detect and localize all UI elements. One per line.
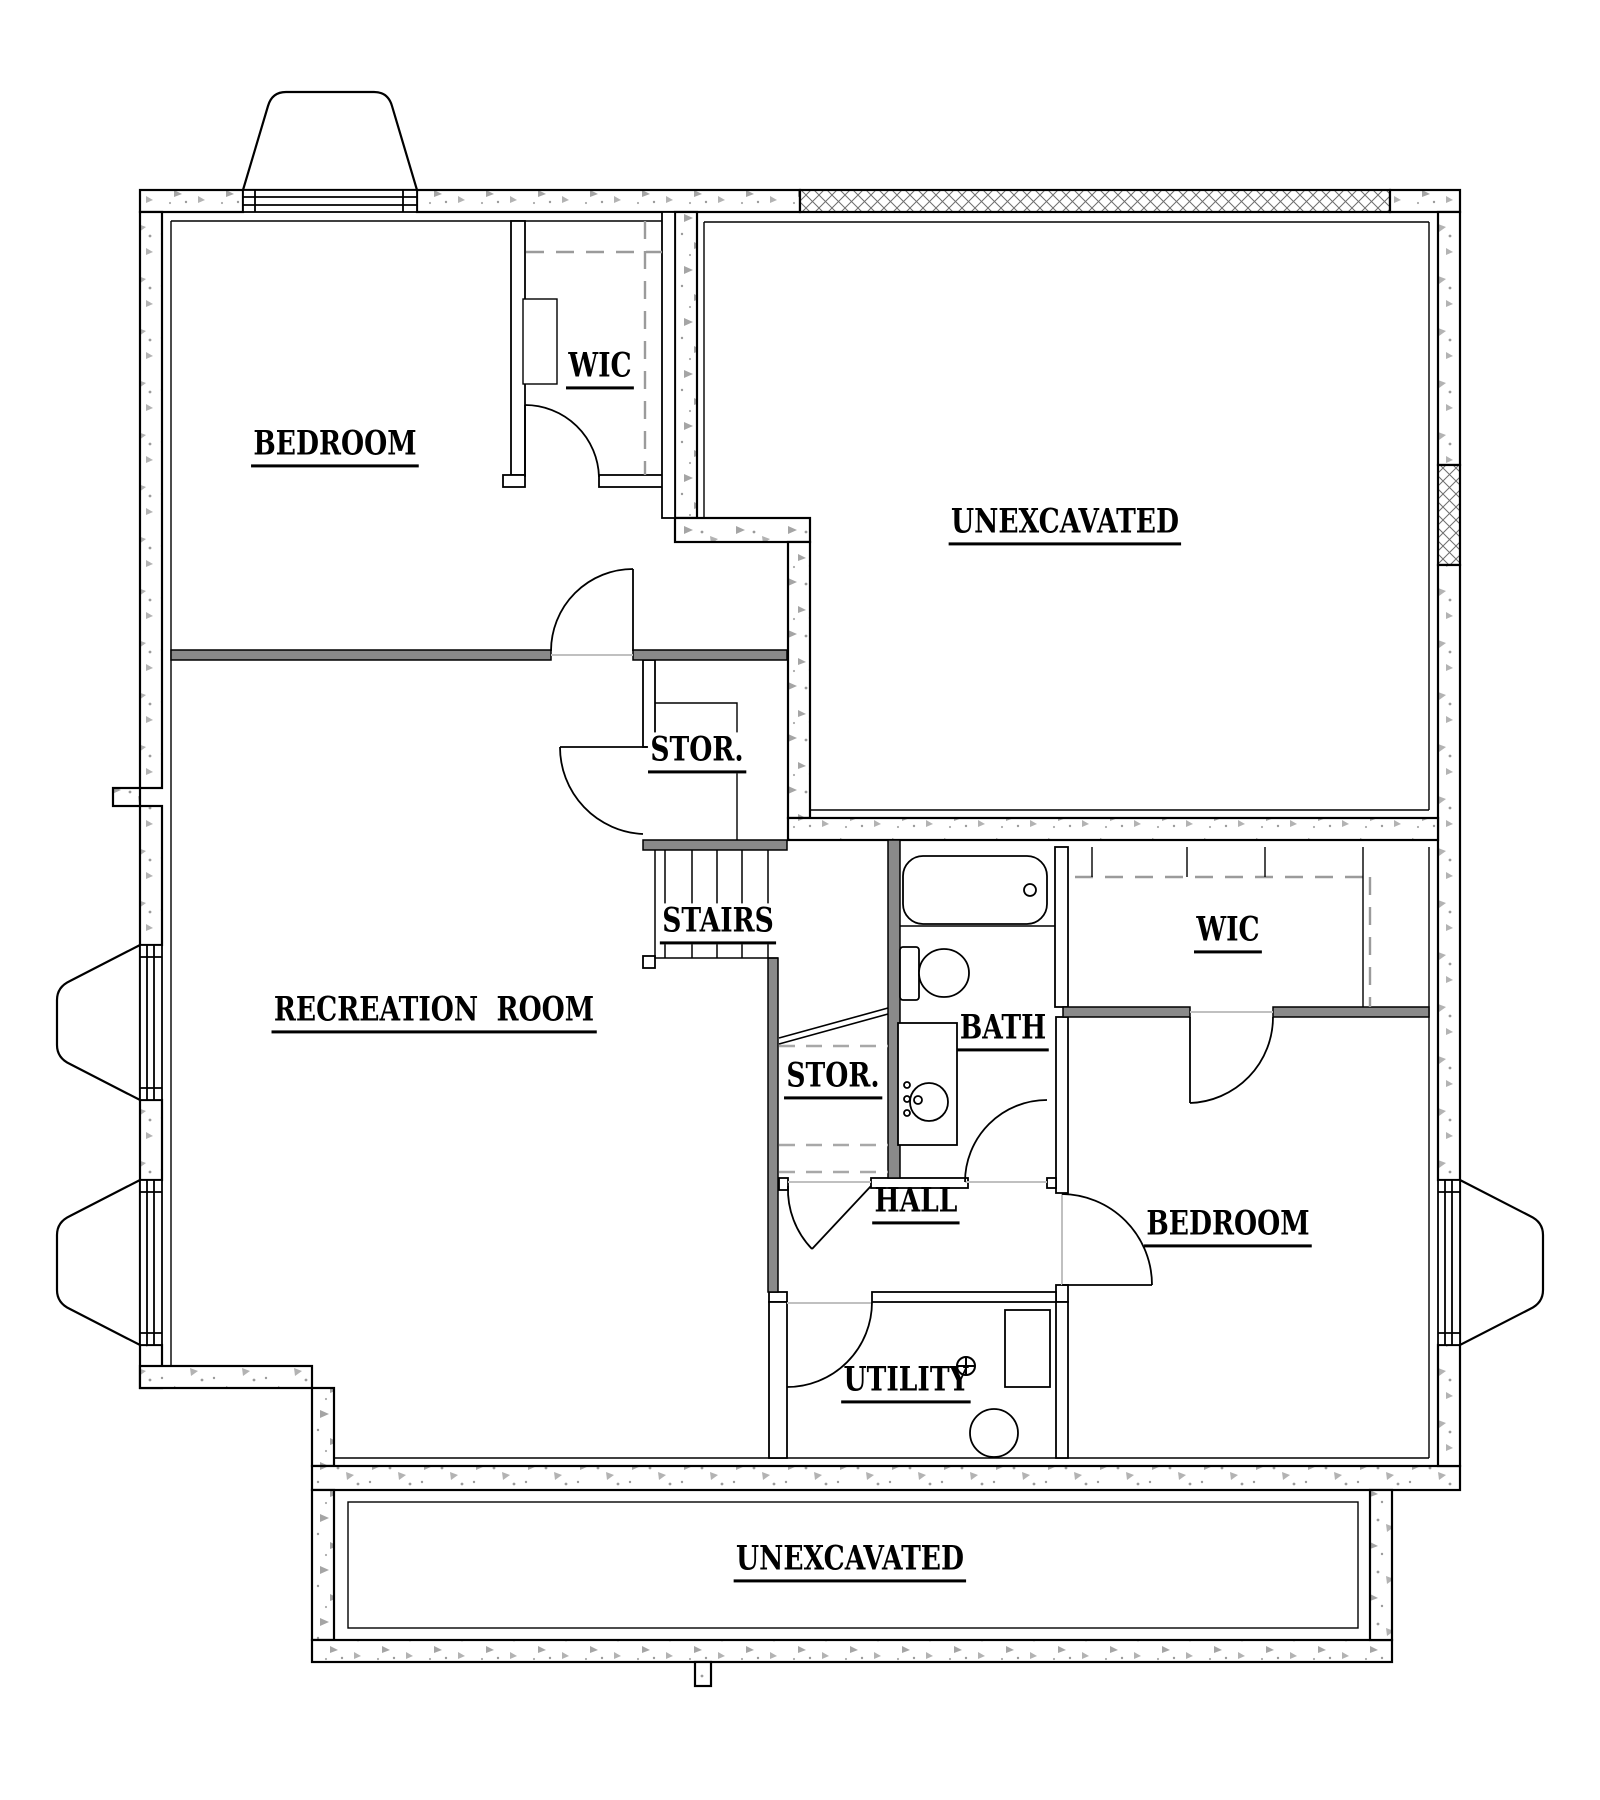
room-label-unexcavated-bottom: UNEXCAVATED [734,1541,967,1582]
room-label-bedroom-top-left: BEDROOM [251,426,419,467]
window-left-lower [140,1180,162,1345]
tub-drain [1024,884,1036,896]
window-well-right [1460,1180,1543,1345]
room-label-utility: UTILITY [841,1362,971,1403]
door-storage-upper [560,747,647,834]
furnace [1005,1310,1050,1387]
window-top-bedroom [243,190,417,212]
room-label-recreation: RECREATION ROOM [272,992,597,1033]
room-label-unexcavated-top: UNEXCAVATED [949,504,1182,545]
window-right-bedroom [1438,1180,1460,1345]
door-wic-right [1190,1017,1273,1103]
room-label-storage-under-stairs: STOR. [784,1058,882,1099]
door-bedroom-top-left [551,569,633,651]
wic-shelf-box [523,299,557,384]
basement-floor-plan: BEDROOM WIC UNEXCAVATED STOR. STAIRS REC… [0,0,1600,1800]
window-well-left-upper [57,945,140,1100]
door-wic-top-left [525,405,599,477]
room-label-wic-top-left: WIC [566,348,634,389]
door-bath [965,1100,1047,1182]
left-wall-pier-tab [113,788,140,806]
room-label-storage-upper: STOR. [648,732,746,773]
room-label-bedroom-right: BEDROOM [1144,1206,1312,1247]
sink-vanity [898,1023,957,1145]
bathtub [903,856,1047,924]
door-bedroom-right [1062,1194,1152,1285]
room-label-bath: BATH [957,1010,1048,1051]
window-well-left-lower [57,1180,140,1345]
bottom-wall-pier-tab [695,1662,711,1686]
room-label-wic-right: WIC [1194,912,1262,953]
room-label-stairs: STAIRS [660,903,776,944]
door-storage-under-stairs [788,1186,871,1249]
window-left-upper [140,945,162,1100]
floor-plan-drawing [0,0,1600,1800]
foundation-top-crosshatch [800,190,1390,212]
window-well-top [243,92,417,190]
water-heater [970,1409,1018,1457]
room-label-hall: HALL [872,1183,960,1224]
toilet [900,947,969,1000]
right-wall-crosshatch [1438,465,1460,565]
